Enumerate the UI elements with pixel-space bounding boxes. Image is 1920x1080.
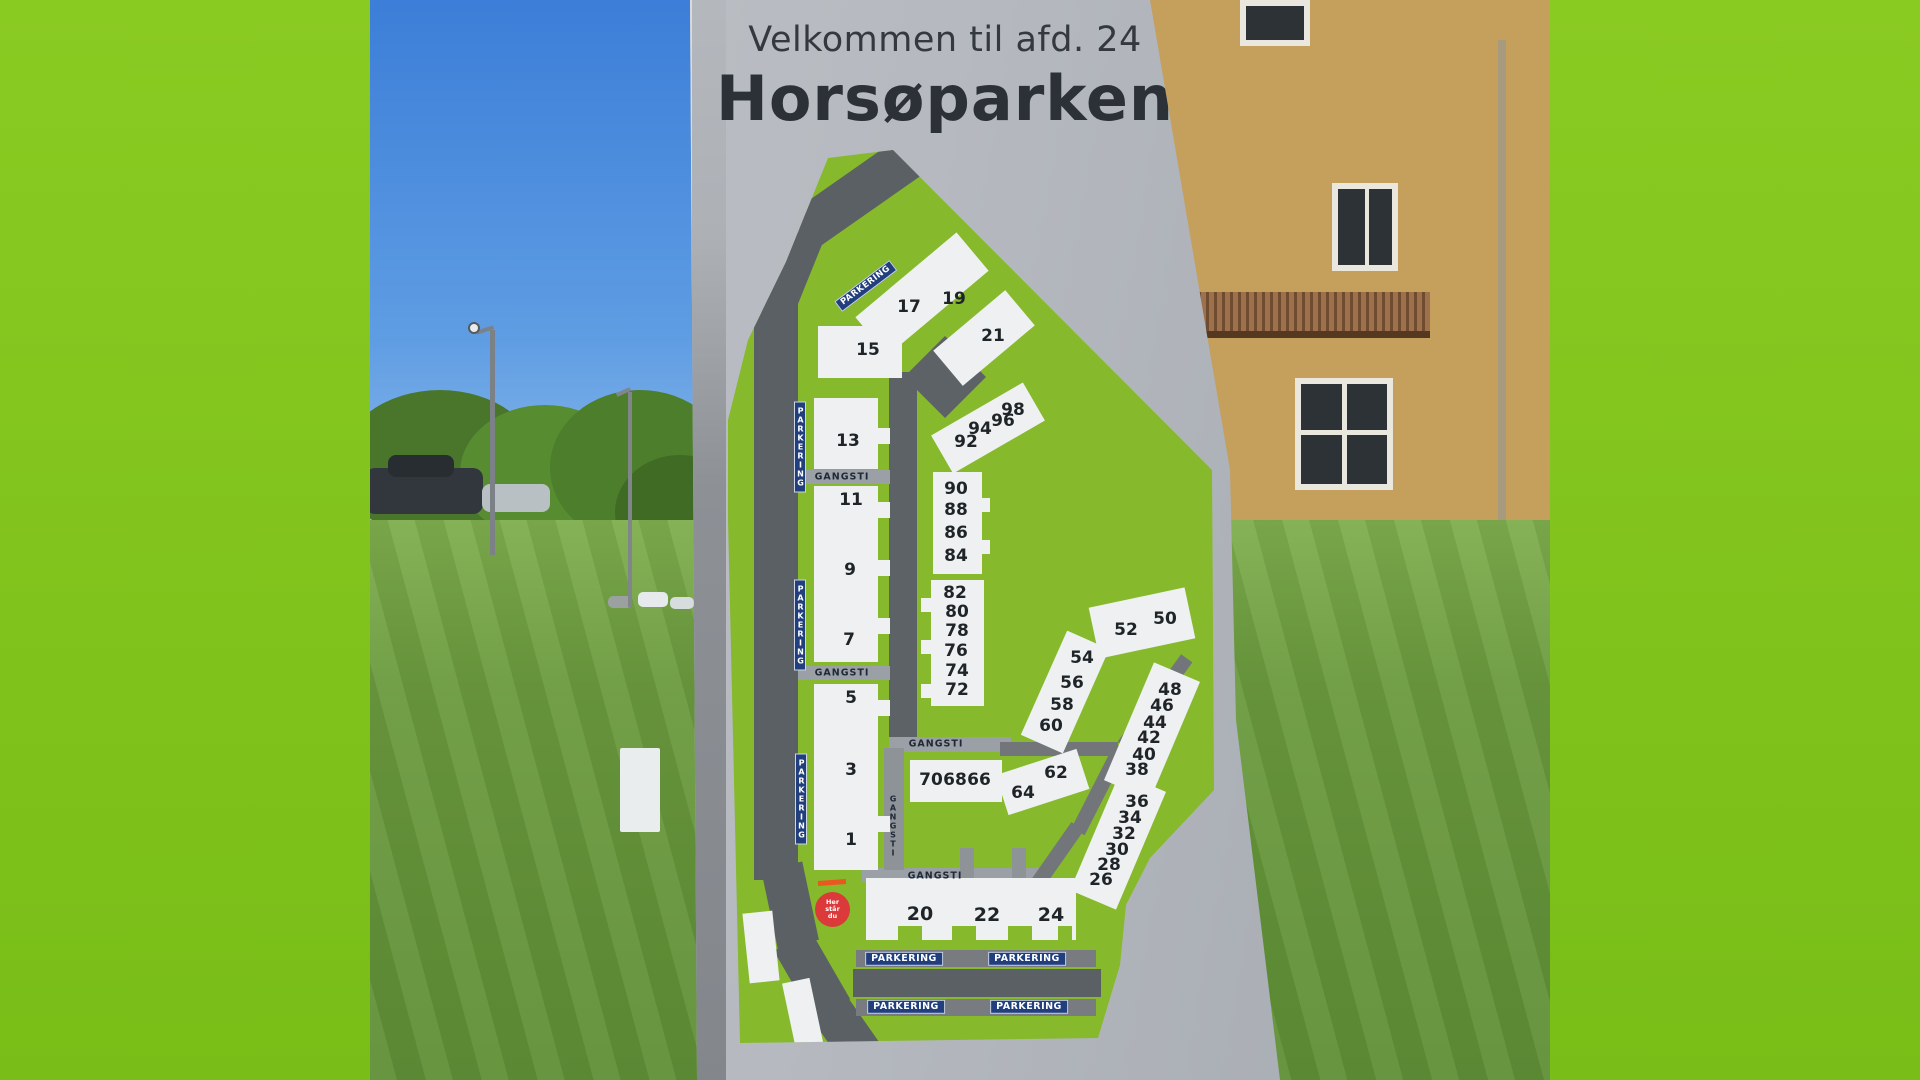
downspout	[1498, 40, 1506, 580]
lamp-post-2	[628, 392, 632, 607]
unit-number: 17	[897, 297, 921, 317]
lamp-post	[490, 330, 495, 555]
white-post	[620, 748, 660, 832]
unit-number: 5	[845, 688, 857, 708]
unit-number: 1	[845, 830, 857, 850]
green-frame-right	[1550, 0, 1920, 1080]
unit-number: 80	[945, 602, 969, 622]
unit-number: 64	[1011, 783, 1035, 803]
parkering-badge: PARKERING	[990, 1000, 1068, 1014]
unit-number: 88	[944, 500, 968, 520]
parkering-badge: PARKERING	[867, 1000, 945, 1014]
gangsti-label: GANGSTI	[908, 871, 963, 882]
unit-number: 19	[942, 289, 966, 309]
notch	[921, 598, 932, 612]
road	[789, 140, 921, 251]
parkering-badge: PARKERING	[795, 754, 807, 845]
gangsti-label: GANGSTI	[815, 668, 870, 679]
notch	[878, 502, 890, 518]
unit-number: 62	[1044, 763, 1068, 783]
gangsti-label: GANGSTI	[909, 739, 964, 750]
notch	[878, 700, 890, 716]
footpath	[1012, 848, 1026, 880]
unit-number: 74	[945, 661, 969, 681]
unit-number: 70	[919, 770, 943, 790]
unit-number: 58	[1050, 695, 1074, 715]
notch	[878, 560, 890, 576]
unit-number: 94	[968, 419, 992, 439]
unit-number: 22	[974, 904, 1000, 926]
house-window-low	[1295, 378, 1393, 490]
notch	[921, 640, 932, 654]
sign-subtitle: Velkommen til afd. 24	[690, 20, 1200, 60]
unit-number: 98	[1001, 400, 1025, 420]
scene: Velkommen til afd. 24 Horsøparken	[0, 0, 1920, 1080]
unit-number: 66	[967, 770, 991, 790]
unit-number: 72	[945, 680, 969, 700]
notch	[980, 498, 990, 512]
unit-number: 60	[1039, 716, 1063, 736]
unit-number: 52	[1114, 620, 1138, 640]
unit-number: 11	[839, 490, 863, 510]
notch-green	[1058, 926, 1072, 940]
unit-number: 50	[1153, 609, 1177, 629]
dark-car-roof	[388, 455, 454, 477]
unit-number: 21	[981, 326, 1005, 346]
notch-green	[1008, 926, 1032, 940]
unit-number: 90	[944, 479, 968, 499]
unit-number: 3	[845, 760, 857, 780]
unit-number: 44	[1143, 713, 1167, 733]
notch-green	[952, 926, 976, 940]
unit-number: 82	[943, 583, 967, 603]
parking-road	[853, 969, 1101, 997]
unit-number: 40	[1132, 745, 1156, 765]
unit-number: 13	[836, 431, 860, 451]
green-frame-left	[0, 0, 370, 1080]
unit-number: 56	[1060, 673, 1084, 693]
gangsti-label: GANGSTI	[889, 795, 898, 858]
unit-number: 76	[944, 641, 968, 661]
parkering-badge: PARKERING	[794, 402, 806, 493]
unit-number: 86	[944, 523, 968, 543]
building-62-64	[996, 749, 1090, 815]
unit-number: 48	[1158, 680, 1182, 700]
parkering-badge: PARKERING	[988, 952, 1066, 966]
parked-car	[670, 597, 694, 609]
lamp-head	[468, 322, 480, 334]
you-are-here-marker: Her står du	[815, 892, 850, 927]
notch	[878, 428, 890, 444]
notch-green	[898, 926, 922, 940]
parkering-badge: PARKERING	[865, 952, 943, 966]
unit-number: 54	[1070, 648, 1094, 668]
notch	[878, 618, 890, 634]
path-spine	[889, 372, 917, 744]
gangsti-label: GANGSTI	[815, 472, 870, 483]
sign-title: Horsøparken	[690, 62, 1200, 135]
notch	[921, 684, 932, 698]
unit-number: 68	[943, 770, 967, 790]
notch	[980, 540, 990, 554]
unit-number: 9	[844, 560, 856, 580]
unit-number: 15	[856, 340, 880, 360]
unit-number: 20	[907, 903, 933, 925]
building-50-52	[1089, 587, 1196, 658]
unit-number: 78	[945, 621, 969, 641]
house-window-top	[1240, 0, 1310, 46]
marker-pointer	[818, 879, 846, 886]
parkering-badge: PARKERING	[794, 580, 806, 671]
unit-number: 36	[1125, 792, 1149, 812]
marker-text: du	[828, 913, 837, 920]
unit-number: 24	[1038, 904, 1064, 926]
house-window-mid	[1332, 183, 1398, 271]
unit-number: 84	[944, 546, 968, 566]
unit-number: 7	[843, 630, 855, 650]
parked-car	[638, 592, 668, 607]
